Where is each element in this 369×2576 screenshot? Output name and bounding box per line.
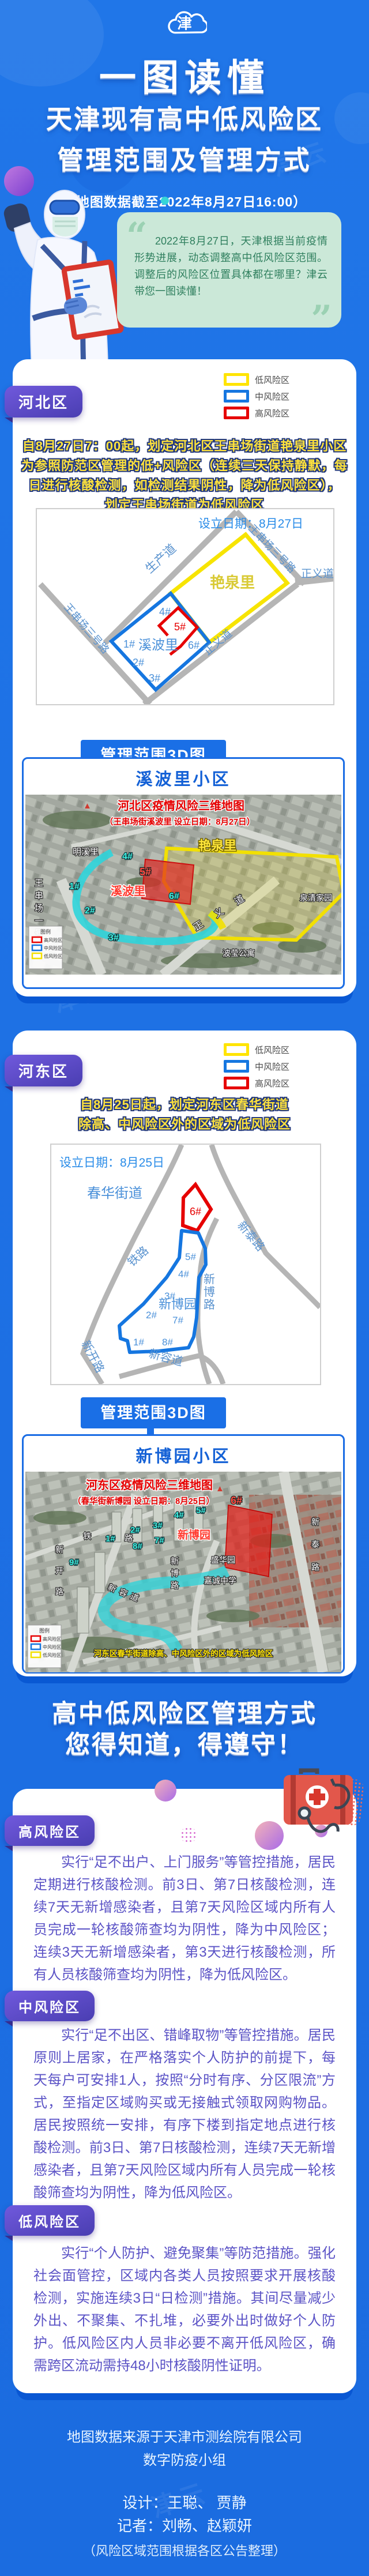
main-title-line1: 一图读懂 (0, 48, 369, 101)
label-xiboli: 溪波里 (111, 884, 145, 898)
label-mingxili: 明溪里 (73, 847, 99, 857)
low-risk-label: 低风险区 (255, 1044, 289, 1056)
label-xinboyuan: 新博园 (178, 1528, 210, 1541)
mid-risk-swatch (224, 1060, 249, 1073)
goggles (50, 201, 79, 214)
mini-legend-mid: 中风险区 (44, 945, 62, 951)
mid-risk-swatch (224, 390, 249, 403)
label-jiachengzhongxue: 嘉诚中学 (204, 1576, 236, 1585)
hebei-3d-photo: 河北区疫情风险三维地图 （王串场街溪波里 设立日期：8月27日） ▲ 明溪里 艳… (25, 795, 341, 975)
footer-reporter-credit: 记者：刘畅、赵颖妍 (0, 2514, 369, 2536)
label-quanqingjiayuan: 泉清家园 (300, 893, 332, 902)
dotted-circle-decor (180, 1827, 197, 1843)
road-xinkailu-photo: 新开路 (55, 1545, 63, 1596)
building-6: 6# (190, 1206, 201, 1217)
photo-caption1: 河东区疫情风险三维地图 (86, 1478, 213, 1492)
hedong-schematic-map: 设立日期：8月25日 春华街道 6# 5# 4# 3# 2# 7# 1# 8# … (50, 1144, 321, 1385)
community-title-xiboli: 溪波里小区 (24, 766, 343, 790)
area-label-yanquanli: 艳泉里 (210, 574, 255, 591)
quote-open-icon: “ (126, 218, 148, 255)
risk-legend: 低风险区 中风险区 高风险区 (224, 373, 345, 423)
building-1: 1# (133, 1337, 144, 1348)
card-management-rules: 高风险区 实行“足不出户、上门服务”等管控措施，居民定期进行核酸检测。前3日、第… (13, 1789, 356, 2393)
district-badge-hebei: 河北区 (5, 386, 82, 418)
rule-badge-low: 低风险区 (5, 2205, 95, 2236)
photo-building-3: 3# (153, 1521, 163, 1530)
low-risk-swatch (224, 1043, 249, 1056)
compass-icon: ▲ (83, 801, 92, 811)
high-risk-3d-block (225, 1505, 272, 1577)
established-date: 设立日期：8月25日 (59, 1156, 164, 1169)
street-label-chunhua: 春华街道 (87, 1186, 142, 1201)
label-yanquanli: 艳泉里 (198, 838, 236, 853)
photo-building-4: 4# (122, 852, 133, 862)
photo-caption2: （春华街新博园 设立日期：8月25日） (73, 1496, 214, 1506)
building-6: 6# (188, 640, 199, 651)
road-xinbolu: 新博路 (204, 1273, 215, 1311)
label-boyinggongyu: 波莹公寓 (223, 949, 255, 958)
high-risk-swatch (224, 1077, 249, 1089)
rules-section-title: 高中低风险区管理方式 您得知道，得遵守！ (0, 1699, 369, 1761)
purple-ball-decor (4, 166, 34, 196)
hedong-3d-panel: 新博园小区 (22, 1434, 345, 1674)
hebei-schematic-map: 设立日期：8月27日 艳泉里 溪波里 4# 5# 1# 2# 3# 6# 生产道… (36, 508, 334, 705)
compass-icon: ▲ (216, 1484, 224, 1494)
mini-legend-low: 低风险区 (43, 1652, 61, 1658)
photo-caption2: （王串场街溪波里 设立日期：8月27日） (105, 817, 255, 827)
building-2: 2# (146, 1310, 157, 1321)
low-risk-swatch (224, 373, 249, 386)
footer-design-credit: 设计：王聪、 贾静 (0, 2491, 369, 2513)
rule-badge-high: 高风险区 (5, 1815, 95, 1846)
first-aid-kit-icon (248, 1762, 363, 1849)
building-5: 5# (174, 621, 186, 633)
hebei-risk-notice: 自8月27日7：00起，划定河北区王串场街道艳泉里小区 为参照防范区管理的低+风… (13, 437, 356, 515)
mid-risk-label: 中风险区 (255, 390, 289, 403)
footer-source-line1: 地图数据来源于天津市测绘院有限公司 (0, 2425, 369, 2446)
footer-note: （风险区域范围根据各区公告整理） (0, 2541, 369, 2559)
area-label-xiboli: 溪波里 (138, 637, 178, 652)
card-hedong-district: 河东区 低风险区 中风险区 高风险区 自8月25日起，划定河东区春华街道 除高、… (13, 1031, 356, 1676)
district-badge-hedong: 河东区 (5, 1055, 82, 1086)
photo-caption1: 河北区疫情风险三维地图 (118, 799, 244, 813)
medic-illustration (0, 166, 124, 368)
high-risk-label: 高风险区 (255, 1077, 289, 1089)
hedong-3d-photo: 河东区疫情风险三维地图 （春华街新博园 设立日期：8月25日） ▲ 6# 5# … (25, 1472, 341, 1672)
photo-building-2: 2# (85, 906, 95, 916)
rule-text-mid: 实行“足不出区、错峰取物”等管控措施。居民原则上居家，在严格落实个人防护的前提下… (33, 2024, 336, 2204)
building-8: 8# (162, 1337, 173, 1348)
photo-building-4: 4# (174, 1510, 184, 1520)
main-title-line2: 天津现有高中低风险区 (0, 98, 369, 136)
quote-close-icon: ” (311, 301, 332, 338)
teal-dot-decor (161, 197, 169, 205)
photo-building-5: 5# (196, 1506, 206, 1515)
community-label-xinboyuan: 新博园 (159, 1297, 197, 1311)
building-4: 4# (178, 1269, 189, 1280)
footer-source-line2: 数字防疫小组 (0, 2449, 369, 2469)
photo-building-6: 6# (169, 892, 179, 901)
banner-3d-map: 管理范围3D图 (81, 1397, 226, 1428)
logo-char: 津 (177, 16, 192, 32)
road-xintailu-photo: 新泰路 (311, 1517, 319, 1571)
label-shenghuayuan: 盛华园 (211, 1555, 235, 1565)
risk-legend: 低风险区 中风险区 高风险区 (224, 1043, 345, 1093)
high-risk-swatch (224, 407, 249, 419)
infographic-page: 津云 津云 津云 津云 津云 津云 津云 津云 津云 津 一图读懂 天津现有高中… (0, 0, 369, 2576)
rule-text-high: 实行“足不出户、上门服务”等管控措施，居民定期进行核酸检测。前3日、第7日核酸检… (33, 1851, 336, 1986)
high-risk-label: 高风险区 (255, 407, 289, 419)
community-title-xinboyuan: 新博园小区 (24, 1443, 343, 1467)
card-hebei-district: 河北区 低风险区 中风险区 高风险区 自8月27日7：00起，划定河北区王串场街… (13, 359, 356, 996)
photo-building-1: 1# (69, 882, 80, 892)
rules-title-line1: 高中低风险区管理方式 (0, 1699, 369, 1730)
gradient-circle-decor (155, 1780, 176, 1802)
rules-title-line2: 您得知道，得遵守！ (0, 1730, 369, 1761)
photo-mini-legend: 图例 高风险区 中风险区 低风险区 (29, 926, 62, 969)
road-zhengyidao-right: 正义道 (301, 567, 334, 580)
building-7: 7# (172, 1315, 183, 1326)
mini-legend-high: 高风险区 (44, 937, 62, 943)
mini-legend-title: 图例 (39, 1627, 50, 1634)
low-risk-label: 低风险区 (255, 374, 289, 386)
mini-legend-title: 图例 (40, 928, 51, 935)
rule-badge-mid: 中风险区 (5, 1991, 95, 2021)
hedong-risk-notice: 自8月25日起，划定河东区春华街道 除高、中风险区外的区域为低风险区 (13, 1095, 356, 1134)
photo-bottom-note: 河东区春华街道除高、中风险区外的区域为低风险区 (94, 1649, 273, 1658)
photo-mini-legend: 图例 高风险区 中风险区 低风险区 (28, 1625, 61, 1668)
rule-text-low: 实行“个人防护、避免聚集”等防范措施。强化社会面管控，区域内各类人员按照要求开展… (33, 2242, 336, 2377)
mini-legend-high: 高风险区 (43, 1636, 61, 1642)
photo-building-6: 6# (231, 1495, 242, 1506)
mini-legend-mid: 中风险区 (43, 1644, 61, 1650)
hebei-3d-panel: 溪波里小区 (22, 757, 345, 989)
mini-legend-low: 低风险区 (44, 953, 62, 959)
photo-building-3: 3# (108, 933, 119, 943)
jinyun-cloud-logo: 津 (162, 5, 207, 43)
photo-building-9: 9# (69, 1558, 79, 1567)
building-3: 3# (149, 672, 160, 684)
mid-risk-label: 中风险区 (255, 1061, 289, 1073)
road-xinbolu-photo: 新博路 (171, 1556, 179, 1590)
building-2: 2# (133, 657, 144, 668)
building-5: 5# (185, 1251, 196, 1262)
photo-building-5: 5# (140, 866, 151, 878)
intro-quote-bubble: “ 2022年8月27日，天津根据当前疫情形势进展，动态调整高中低风险区范围。调… (117, 212, 341, 328)
building-1: 1# (123, 638, 135, 650)
intro-quote-text: 2022年8月27日，天津根据当前疫情形势进展，动态调整高中低风险区范围。调整后… (134, 233, 327, 300)
building-4: 4# (159, 606, 171, 618)
